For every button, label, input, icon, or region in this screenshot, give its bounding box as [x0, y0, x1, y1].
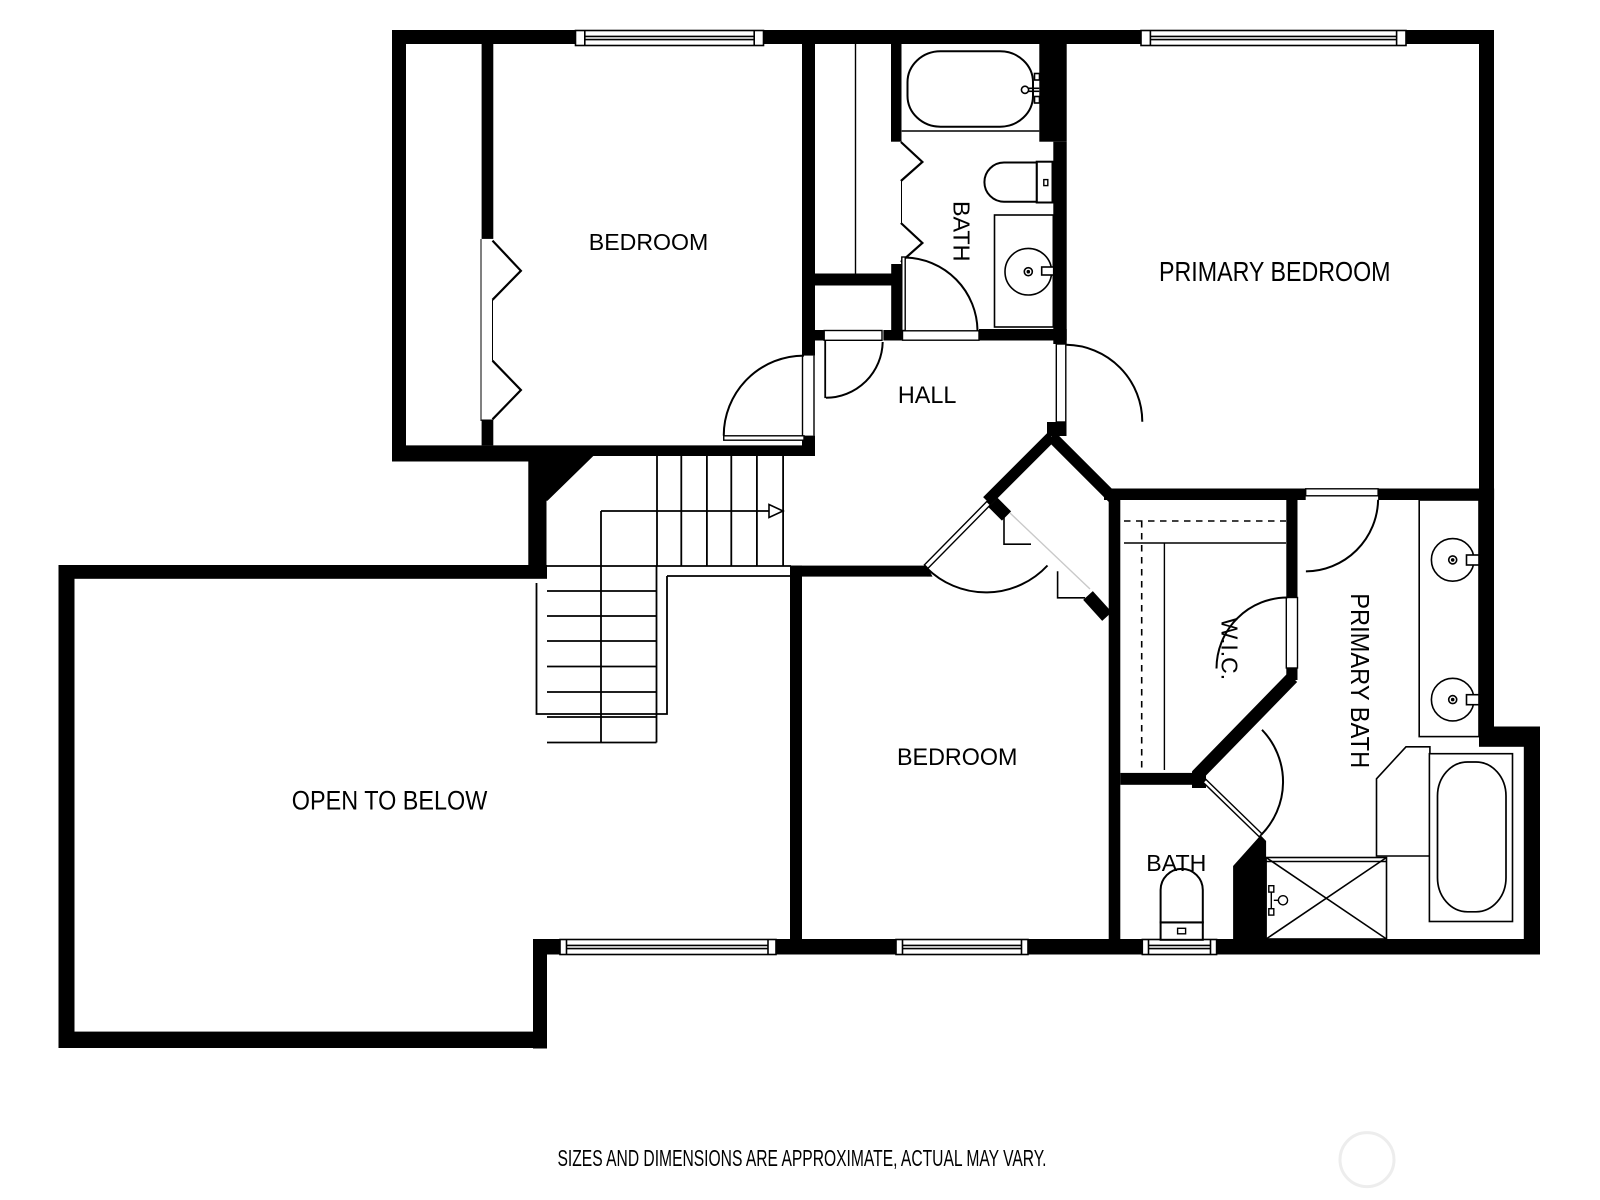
- svg-text:BEDROOM: BEDROOM: [897, 744, 1017, 771]
- svg-text:OPEN TO BELOW: OPEN TO BELOW: [292, 786, 488, 816]
- svg-text:BATH: BATH: [949, 201, 975, 262]
- svg-text:HALL: HALL: [898, 382, 957, 409]
- svg-text:BEDROOM: BEDROOM: [589, 229, 709, 255]
- svg-text:PRIMARY BEDROOM: PRIMARY BEDROOM: [1159, 256, 1391, 287]
- svg-text:BATH: BATH: [1146, 850, 1206, 876]
- svg-text:W.I.C.: W.I.C.: [1217, 618, 1243, 681]
- svg-text:PRIMARY BATH: PRIMARY BATH: [1345, 593, 1373, 768]
- svg-text:SIZES AND DIMENSIONS ARE APPRO: SIZES AND DIMENSIONS ARE APPROXIMATE, AC…: [558, 1145, 1047, 1171]
